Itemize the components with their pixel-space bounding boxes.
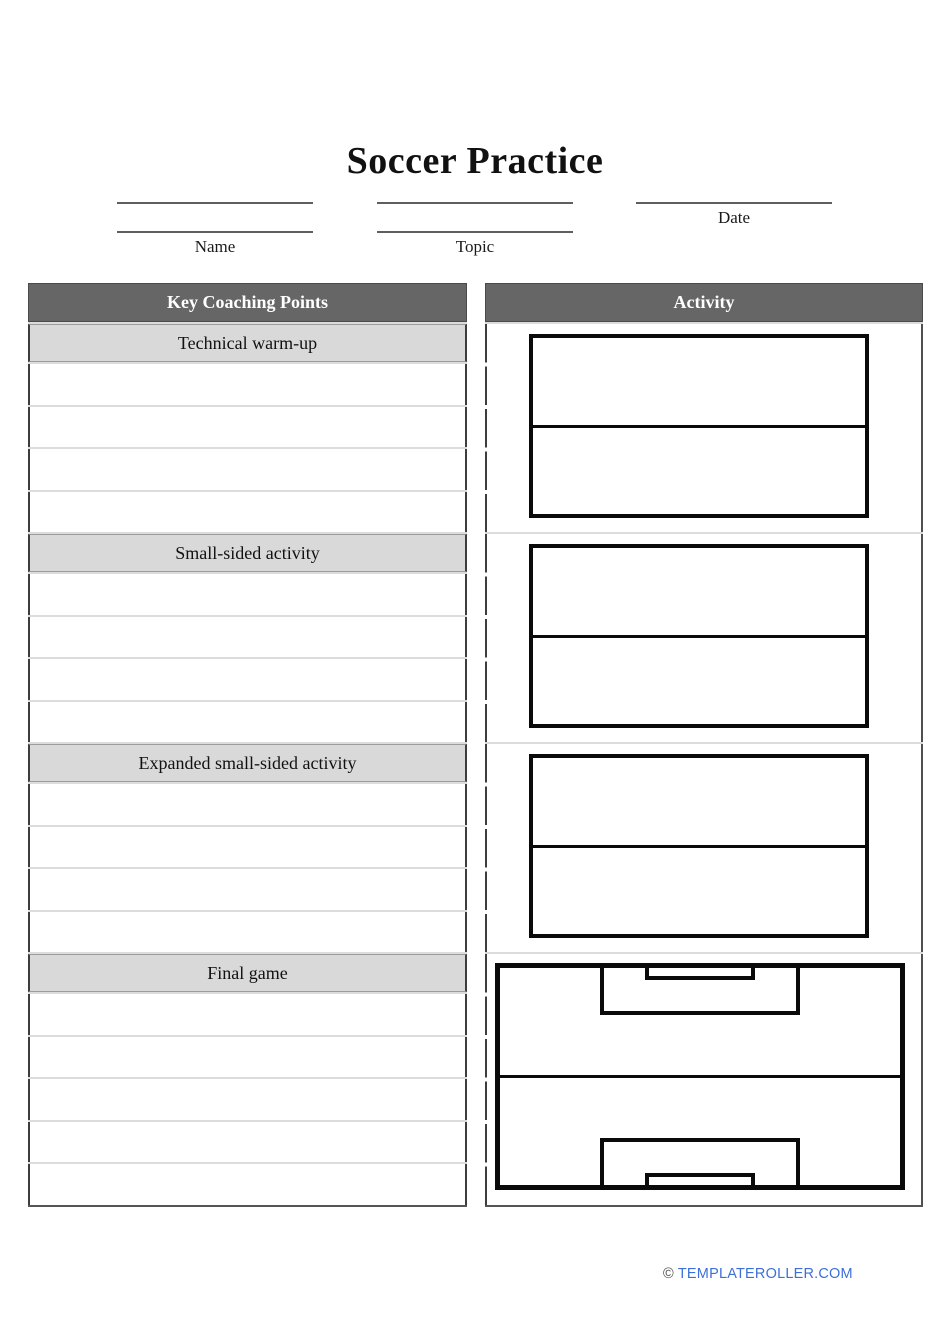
topic-label: Topic [377, 233, 573, 257]
topic-blank-line-1 [377, 176, 573, 204]
half-field-diagram [529, 334, 869, 518]
key-coaching-points-header: Key Coaching Points [28, 283, 467, 322]
activity-cell-technical-warm-up [485, 324, 923, 532]
name-blank-line-2 [117, 204, 313, 233]
section-header-expanded-small-sided-activity: Expanded small-sided activity [28, 744, 467, 782]
blank-row [28, 1164, 467, 1205]
blank-row [28, 912, 467, 953]
goal-box-top [645, 968, 755, 980]
document-page: Soccer Practice Name Topic Date Key Coac… [0, 0, 950, 1342]
section-header-final-game: Final game [28, 954, 467, 992]
name-field: Name [117, 176, 313, 257]
key-coaching-points-table: Key Coaching Points Technical warm-up Sm… [28, 283, 467, 1207]
activity-table: Activity [485, 283, 923, 1207]
date-field: Date [636, 176, 832, 228]
blank-row [28, 617, 467, 658]
blank-row [28, 869, 467, 910]
topic-blank-line-2 [377, 204, 573, 233]
blank-row [28, 994, 467, 1035]
date-label: Date [636, 204, 832, 228]
blank-row [28, 574, 467, 615]
blank-row [28, 702, 467, 743]
templateroller-link[interactable]: TEMPLATEROLLER.COM [678, 1266, 853, 1282]
activity-cell-small-sided-activity [485, 534, 923, 742]
copyright-symbol: © [663, 1266, 674, 1282]
diagram-mid-line [533, 635, 865, 638]
section-header-technical-warm-up: Technical warm-up [28, 324, 467, 362]
blank-row [28, 407, 467, 448]
blank-row [28, 364, 467, 405]
blank-row [28, 1122, 467, 1163]
name-label: Name [117, 233, 313, 257]
section-header-small-sided-activity: Small-sided activity [28, 534, 467, 572]
blank-row [28, 492, 467, 533]
goal-box-bottom [645, 1173, 755, 1185]
activity-header: Activity [485, 283, 923, 322]
activity-cell-expanded-small-sided-activity [485, 744, 923, 952]
diagram-mid-line [533, 425, 865, 428]
blank-row [28, 449, 467, 490]
blank-row [28, 659, 467, 700]
blank-row [28, 827, 467, 868]
blank-row [28, 1037, 467, 1078]
date-blank-line [636, 176, 832, 204]
name-blank-line-1 [117, 176, 313, 204]
half-field-diagram [529, 544, 869, 728]
halfway-line [500, 1075, 900, 1078]
blank-row [28, 784, 467, 825]
soccer-field-diagram [495, 963, 905, 1190]
diagram-mid-line [533, 845, 865, 848]
footer: © TEMPLATEROLLER.COM [663, 1266, 853, 1282]
topic-field: Topic [377, 176, 573, 257]
half-field-diagram [529, 754, 869, 938]
blank-row [28, 1079, 467, 1120]
activity-cell-final-game [485, 954, 923, 1205]
